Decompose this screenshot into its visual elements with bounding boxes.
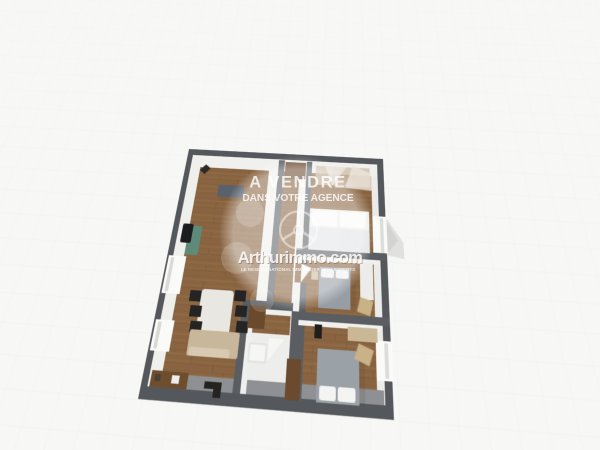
svg-text:Arthurimmo.com: Arthurimmo.com	[238, 249, 363, 267]
svg-text:A VENDRE: A VENDRE	[249, 174, 346, 192]
svg-text:DANS VOTRE AGENCE: DANS VOTRE AGENCE	[242, 193, 353, 204]
svg-text:LE RÉSEAU NATIONAL IMMOBILIER: LE RÉSEAU NATIONAL IMMOBILIER 100% EXPER…	[241, 267, 356, 272]
